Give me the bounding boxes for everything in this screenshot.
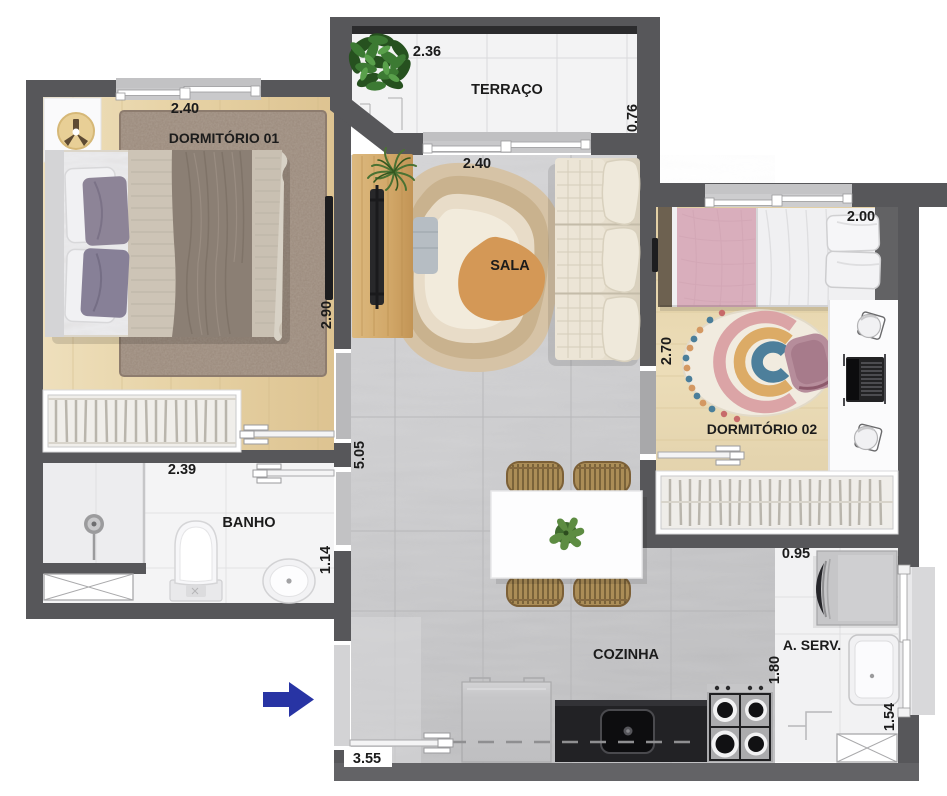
svg-text:2.00: 2.00 [847,209,875,225]
svg-text:2.40: 2.40 [463,156,491,172]
svg-text:2.90: 2.90 [319,301,335,329]
svg-text:2.40: 2.40 [171,101,199,117]
svg-text:1.14: 1.14 [318,546,334,574]
svg-text:2.39: 2.39 [168,462,196,478]
svg-text:3.55: 3.55 [353,751,381,767]
svg-text:TERRAÇO: TERRAÇO [471,82,543,98]
svg-text:2.70: 2.70 [659,337,675,365]
svg-text:2.36: 2.36 [413,44,441,60]
svg-text:COZINHA: COZINHA [593,647,660,663]
svg-text:0.76: 0.76 [625,104,641,132]
svg-text:A. SERV.: A. SERV. [783,637,841,653]
svg-text:1.80: 1.80 [767,656,783,684]
svg-text:1.54: 1.54 [882,703,898,731]
svg-text:5.05: 5.05 [352,441,368,469]
svg-text:0.95: 0.95 [782,546,810,562]
svg-text:BANHO: BANHO [222,515,275,531]
svg-text:SALA: SALA [490,258,530,274]
svg-text:DORMITÓRIO 01: DORMITÓRIO 01 [169,129,280,146]
svg-text:DORMITÓRIO 02: DORMITÓRIO 02 [707,420,818,437]
